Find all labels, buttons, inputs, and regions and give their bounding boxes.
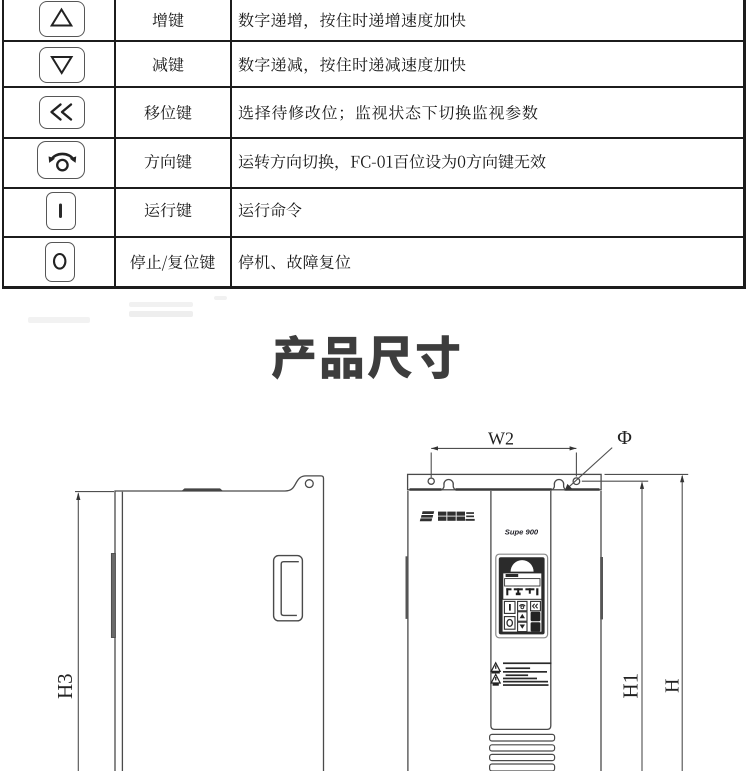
svg-text:Φ: Φ	[617, 427, 632, 449]
svg-text:H3: H3	[53, 673, 77, 699]
svg-text:H1: H1	[619, 673, 643, 699]
svg-text:H: H	[662, 679, 684, 693]
svg-text:Supe 900: Supe 900	[505, 528, 539, 537]
svg-text:W2: W2	[488, 428, 514, 448]
